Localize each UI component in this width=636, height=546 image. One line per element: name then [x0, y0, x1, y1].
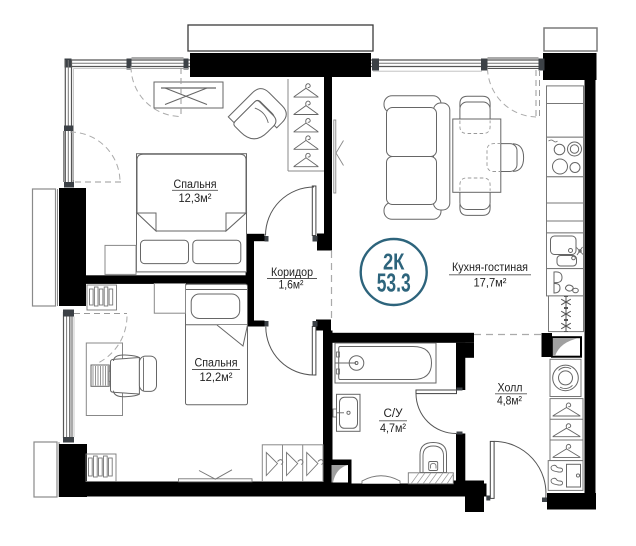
svg-text:17,7м²: 17,7м²	[474, 276, 507, 290]
svg-text:1,6м²: 1,6м²	[279, 278, 304, 292]
svg-text:4,8м²: 4,8м²	[497, 394, 522, 408]
svg-text:Спальня: Спальня	[174, 179, 217, 191]
svg-text:Спальня: Спальня	[195, 358, 238, 370]
svg-text:С/У: С/У	[384, 408, 404, 420]
svg-text:12,2м²: 12,2м²	[200, 370, 233, 384]
svg-text:53.3: 53.3	[377, 268, 411, 298]
svg-text:Кухня-гостиная: Кухня-гостиная	[452, 262, 528, 274]
svg-text:4,7м²: 4,7м²	[380, 421, 406, 435]
svg-text:12,3м²: 12,3м²	[179, 191, 212, 205]
